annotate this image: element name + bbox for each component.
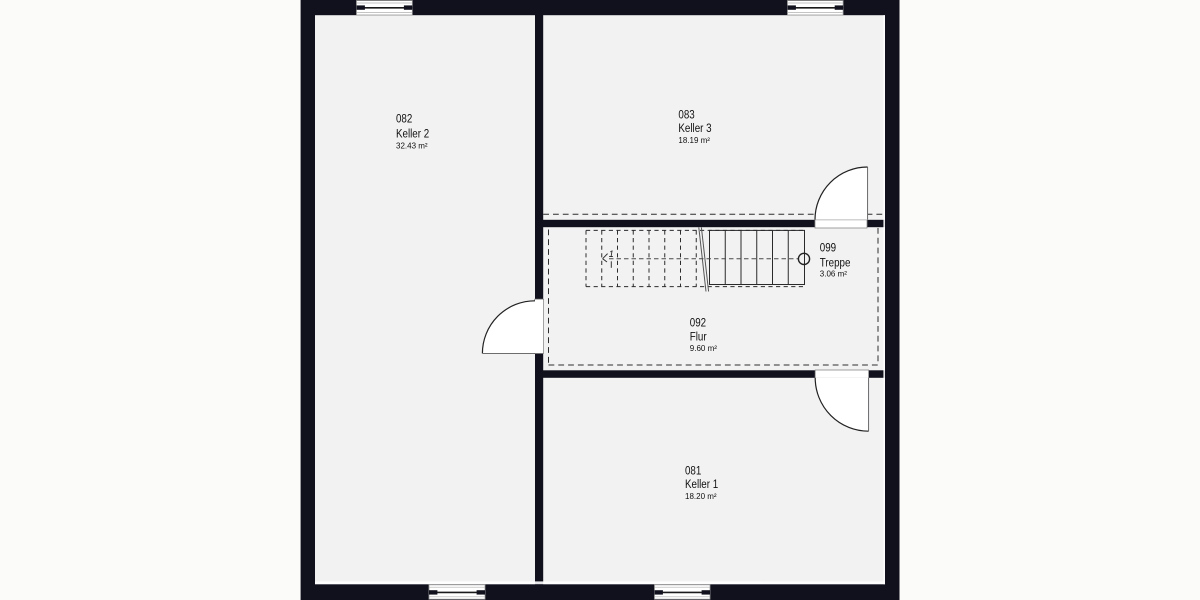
svg-text:Keller 2: Keller 2 (396, 127, 429, 140)
svg-text:32.43 m²: 32.43 m² (396, 141, 428, 150)
svg-text:099: 099 (820, 242, 836, 255)
svg-text:18.20 m²: 18.20 m² (685, 492, 717, 501)
svg-text:1: 1 (609, 249, 614, 259)
svg-text:092: 092 (690, 316, 706, 329)
svg-text:Treppe: Treppe (820, 256, 851, 269)
svg-text:081: 081 (685, 464, 701, 477)
svg-text:18.19 m²: 18.19 m² (678, 136, 710, 145)
svg-text:082: 082 (396, 113, 412, 126)
svg-text:Flur: Flur (690, 331, 707, 344)
svg-text:3.06 m²: 3.06 m² (820, 270, 847, 279)
svg-text:9.60 m²: 9.60 m² (690, 344, 717, 353)
svg-text:Keller 3: Keller 3 (678, 122, 711, 135)
svg-text:083: 083 (678, 108, 694, 121)
svg-text:Keller 1: Keller 1 (685, 478, 718, 491)
